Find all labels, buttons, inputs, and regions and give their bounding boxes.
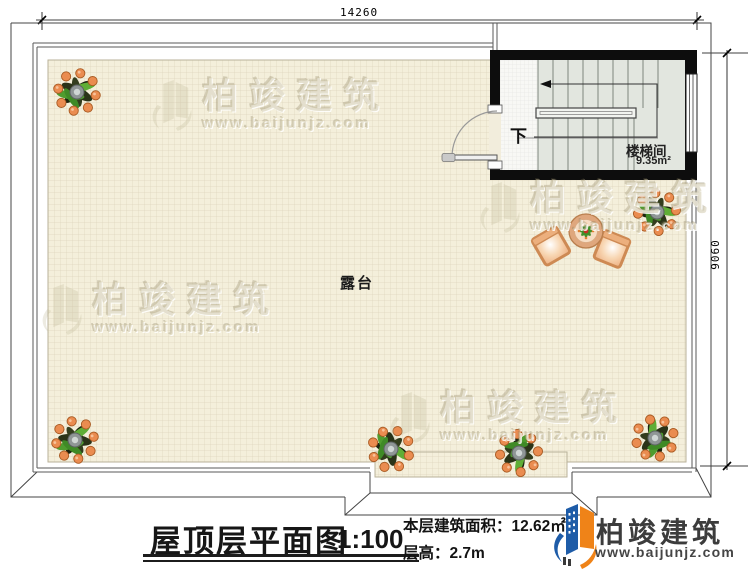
stair-landing bbox=[500, 60, 538, 170]
floor-area-text: 本层建筑面积：12.62㎡ bbox=[403, 514, 566, 536]
stair-handrail bbox=[536, 108, 636, 118]
title-underline bbox=[143, 560, 419, 562]
door-leaf bbox=[450, 155, 497, 160]
terrace-label: 露台 bbox=[340, 272, 374, 293]
floor-plan-drawing bbox=[0, 0, 750, 577]
roof-floor-plan-page: 14260 9060 露台 楼梯间 9.35m² 下 柏竣建筑 www.baij… bbox=[0, 0, 750, 577]
brand-site: www.baijunjz.com bbox=[595, 544, 735, 560]
stair-down-label: 下 bbox=[510, 122, 527, 147]
title-underline bbox=[143, 554, 419, 557]
dimension-right-height: 9060 bbox=[709, 239, 722, 270]
brand-logo-icon bbox=[548, 501, 598, 571]
door-handle-icon bbox=[442, 154, 455, 162]
floor-height-text: 层高：2.7m bbox=[403, 541, 485, 563]
stair-room-area-label: 9.35m² bbox=[636, 155, 671, 167]
stairwell-window bbox=[686, 74, 697, 152]
drawing-scale: 1:100 bbox=[337, 524, 404, 555]
patio-table bbox=[569, 214, 603, 248]
dimension-top-width: 14260 bbox=[340, 6, 378, 19]
